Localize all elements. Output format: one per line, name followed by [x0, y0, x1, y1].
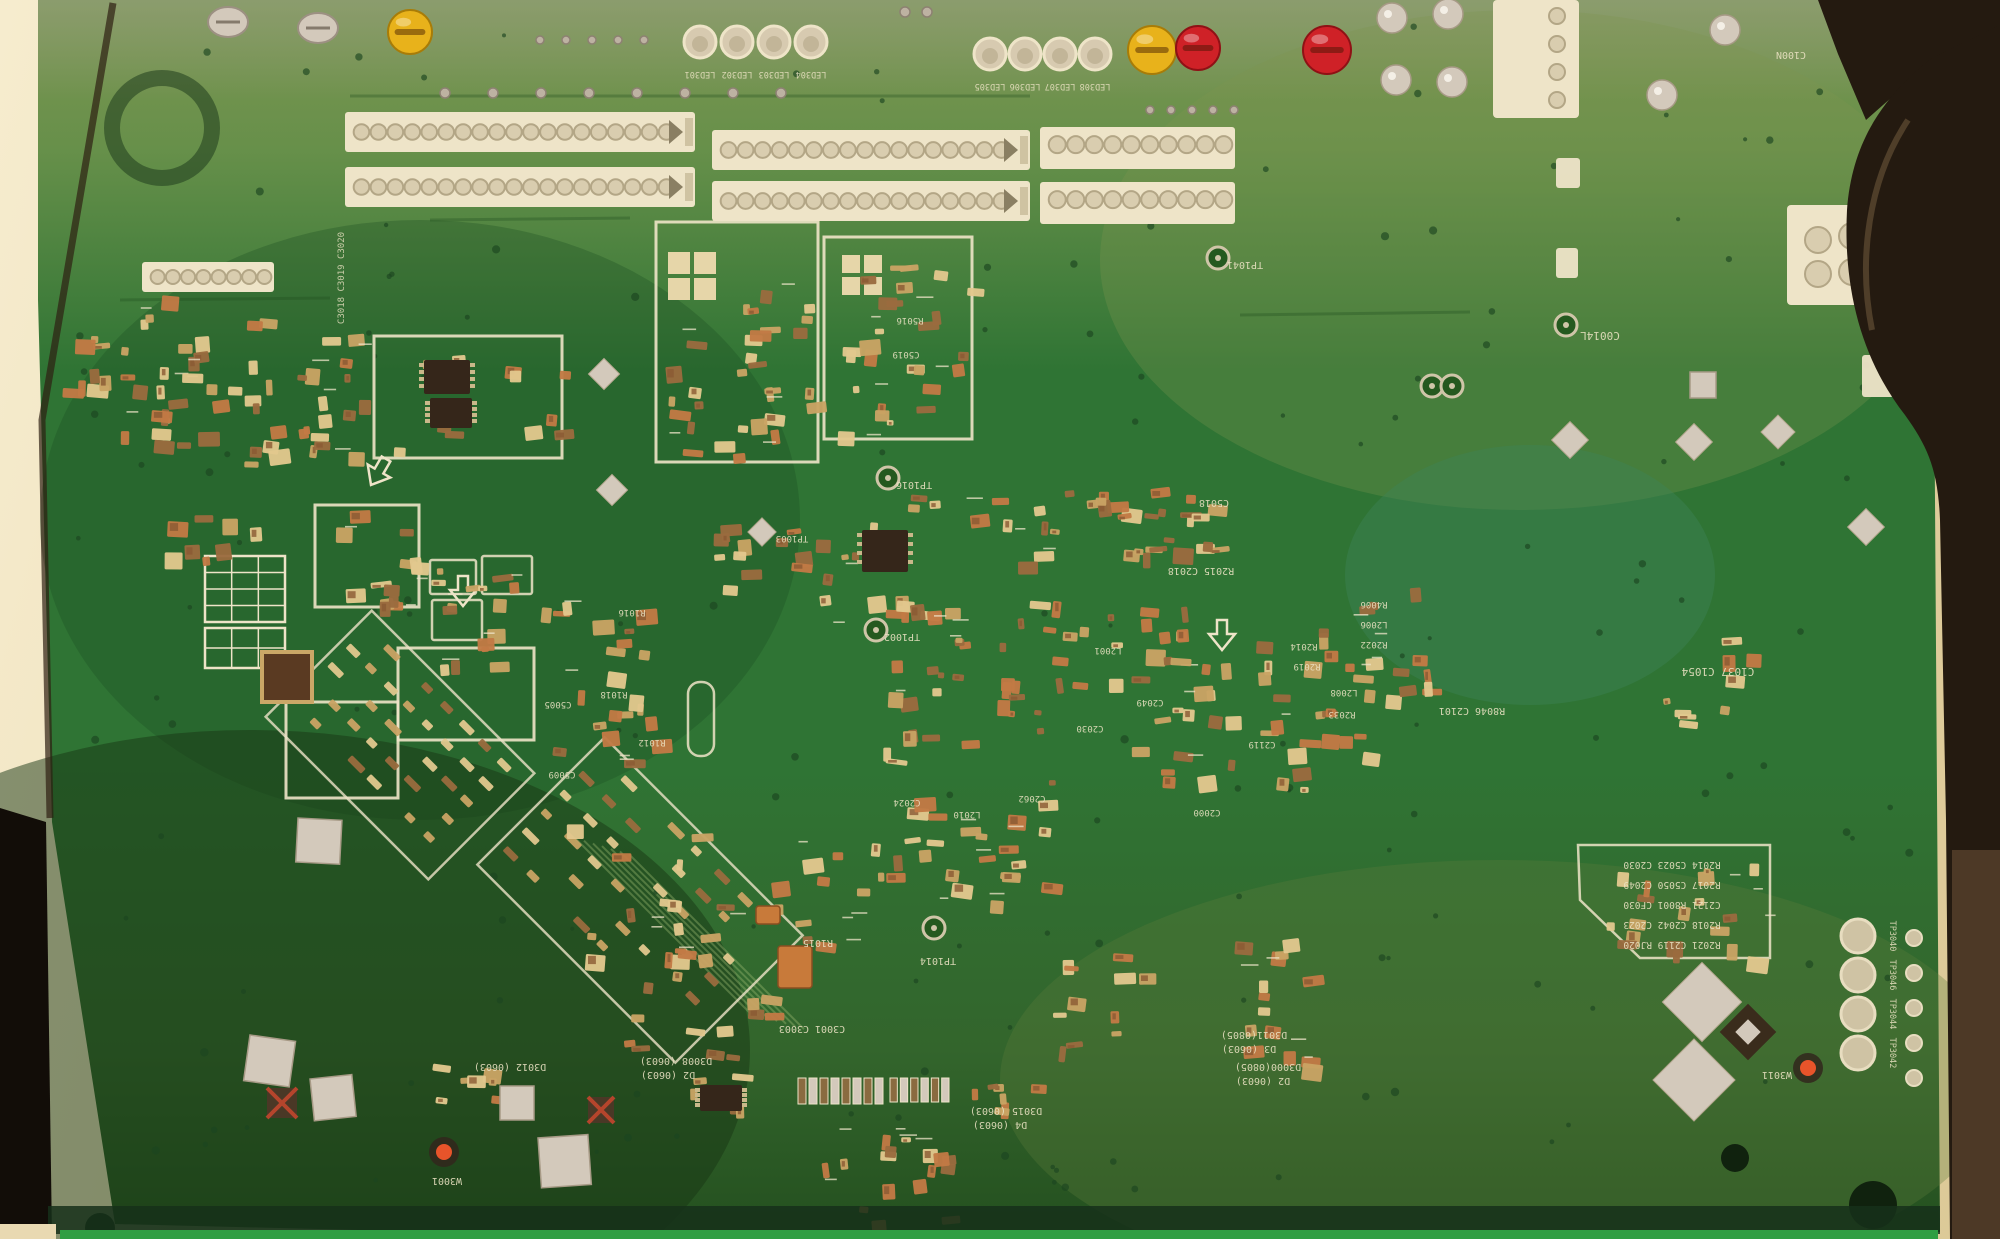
silkscreen-label: R2022 [1360, 639, 1387, 649]
via-dot [895, 1114, 901, 1120]
chip-pin [695, 1103, 700, 1107]
pad [1159, 631, 1171, 644]
solder-dot [1065, 634, 1071, 639]
micro-silk-text [851, 912, 867, 914]
pad [733, 551, 746, 561]
test-point [1441, 375, 1463, 397]
solder-dot [433, 582, 439, 585]
pad [816, 539, 831, 553]
pad [303, 426, 310, 435]
solder-dot [1089, 503, 1094, 507]
via-dot [1816, 88, 1823, 95]
dome-highlight [1440, 6, 1448, 14]
via-dot [634, 1091, 641, 1098]
solder-dot [316, 443, 323, 447]
pad [1065, 490, 1075, 498]
silkscreen-label: D3008 (0603) [640, 1055, 712, 1066]
pad [268, 448, 291, 466]
via-dot [1387, 848, 1392, 853]
solder-dot [123, 376, 129, 379]
strip-pin [960, 193, 976, 209]
pin-pad [1230, 106, 1238, 114]
pad [1258, 672, 1272, 686]
via-dot [200, 1048, 208, 1056]
pad [1096, 498, 1107, 506]
chip-pin [742, 1098, 747, 1102]
solder-dot [1052, 531, 1056, 534]
solder-dot [186, 547, 192, 554]
micro-silk-text [967, 497, 983, 499]
block-pin [1549, 36, 1565, 52]
chip-body [430, 398, 472, 428]
pad [244, 461, 258, 467]
solder-dot [912, 607, 918, 615]
via-dot [1905, 849, 1913, 857]
strip-pin [772, 193, 788, 209]
pad [938, 672, 945, 678]
pad [990, 900, 1004, 914]
micro-silk-text [335, 448, 351, 450]
led-red [429, 1137, 459, 1167]
solder-dot [692, 389, 697, 395]
pad [751, 418, 769, 435]
silkscreen-label: R2015 C2018 [1168, 565, 1234, 576]
micro-silk-text [484, 632, 495, 634]
via-dot [1483, 341, 1490, 348]
strip-pin [1215, 191, 1232, 208]
pad [592, 619, 615, 635]
cap-slot [395, 29, 426, 35]
via-dot [1132, 418, 1138, 424]
micro-silk-text [683, 329, 697, 331]
via-dot [355, 53, 362, 60]
pad [975, 833, 987, 841]
solder-dot [874, 845, 878, 852]
chip-body [700, 1085, 742, 1111]
solder-dot [1041, 829, 1046, 834]
label-box-row: R2021 C2119 RJ020 [1623, 939, 1721, 950]
pad [875, 329, 884, 335]
solder-dot [346, 376, 349, 380]
pin-pad [1146, 106, 1154, 114]
via-dot [408, 1080, 414, 1086]
pad [1034, 551, 1055, 562]
solder-dot [1013, 864, 1019, 868]
via-dot [921, 1067, 929, 1075]
via-dot [1679, 597, 1685, 603]
via-dot [1634, 578, 1640, 584]
pad [1354, 734, 1367, 740]
micro-silk-text [652, 916, 665, 918]
solder-dot [667, 369, 673, 377]
solder-dot [1068, 1045, 1075, 1048]
hatch-pad [921, 1078, 928, 1102]
pad [801, 316, 813, 325]
pad [1299, 739, 1321, 748]
pad [270, 425, 288, 440]
pin-pad [614, 36, 622, 44]
pad [153, 440, 175, 455]
pad [1079, 627, 1089, 638]
pin-pad [728, 88, 738, 98]
via-dot [1844, 475, 1850, 481]
pad [616, 639, 632, 649]
chip-pin [742, 1093, 747, 1097]
via-dot [1281, 413, 1285, 417]
silkscreen-label: L2010 [953, 809, 980, 819]
hatch-pad [931, 1078, 938, 1102]
strip-pin [755, 193, 771, 209]
pad [1141, 618, 1153, 632]
connector-strip [345, 112, 695, 152]
silkscreen-label: TP1014 [920, 955, 956, 966]
pin-pad [900, 7, 910, 17]
solder-dot [955, 885, 964, 892]
pad [198, 432, 220, 447]
solder-dot [749, 311, 754, 314]
solder-dome [1381, 65, 1411, 95]
orange-component [756, 906, 780, 924]
via-dot [124, 916, 129, 921]
solder-dot [1044, 884, 1053, 890]
cross-pad [267, 1088, 297, 1118]
chip-pin [695, 1093, 700, 1097]
chip-pin [470, 370, 475, 374]
solder-dot [1182, 514, 1191, 517]
pad [359, 400, 371, 415]
solder-dot [1304, 979, 1313, 984]
via-dot [91, 736, 99, 744]
led-footprint [1841, 919, 1875, 953]
via-dot [1726, 772, 1733, 779]
hatch-pad [890, 1078, 897, 1102]
pad [833, 852, 844, 860]
chip-pin [419, 377, 424, 381]
pad [608, 710, 622, 723]
solder-dot [348, 591, 356, 598]
solder-dot [1194, 516, 1201, 520]
solder-dot [1723, 640, 1731, 644]
test-point [923, 917, 945, 939]
solder-dot [955, 676, 960, 679]
solder-dot [170, 523, 178, 531]
via-dot [1534, 981, 1541, 988]
pad [524, 425, 543, 441]
pad [870, 522, 878, 531]
silkscreen-label: R8046 C2101 [1439, 705, 1505, 716]
micro-silk-text [1354, 614, 1369, 616]
solder-dot [352, 513, 360, 519]
via-dot [1008, 1025, 1013, 1030]
via-dot [595, 1150, 599, 1154]
solder-dot [1179, 632, 1184, 639]
led-pad-label: LED303 [759, 69, 790, 79]
pin-pad [640, 36, 648, 44]
solder-dot [1115, 955, 1123, 959]
strip-pin [540, 124, 556, 140]
via-dot [465, 315, 470, 320]
test-point-dot [885, 475, 891, 481]
solder-dot [555, 749, 561, 753]
led-small-pad [1906, 1070, 1922, 1086]
solder-dot [948, 871, 953, 877]
micro-silk-text [188, 359, 200, 361]
via-dot [241, 989, 246, 994]
pad [215, 543, 233, 562]
solder-dot [382, 604, 386, 612]
strip-pin [354, 124, 370, 140]
silkscreen-label: D3 (0603) [1222, 1043, 1276, 1054]
pad [1287, 748, 1307, 766]
dome-body [1377, 3, 1407, 33]
silkscreen-label-vertical: C3018 C3019 C3020 [337, 232, 347, 324]
micro-silk-text [651, 926, 662, 928]
solder-dot [1165, 778, 1170, 784]
solder-dot [668, 954, 671, 962]
pad [1170, 658, 1191, 667]
via-dot [1676, 217, 1680, 221]
led-footprint [1841, 997, 1875, 1031]
pad [922, 735, 940, 742]
via-dot [1593, 735, 1599, 741]
strip-pin [1086, 136, 1103, 153]
test-point [1555, 314, 1577, 336]
via-dot [624, 1134, 632, 1142]
cap-highlight [396, 18, 411, 27]
pad [817, 876, 830, 887]
pad [804, 304, 815, 314]
pad [121, 347, 129, 356]
solder-dot [675, 973, 679, 978]
quad-square [694, 278, 716, 300]
strip-pin [925, 142, 941, 158]
solder-dot [696, 404, 700, 408]
chip-pin [472, 413, 477, 417]
strip-pin [212, 270, 226, 284]
solder-dot [1004, 874, 1011, 879]
strip-pin [438, 179, 454, 195]
pad [451, 660, 460, 675]
pad [875, 410, 890, 422]
pad [318, 396, 329, 412]
quad-square [842, 277, 860, 295]
pad [631, 1014, 644, 1022]
pad [878, 873, 885, 882]
pad [1145, 649, 1166, 667]
micro-silk-text [936, 366, 949, 368]
pad [1000, 643, 1007, 652]
strip-pin [421, 179, 437, 195]
micro-silk-text [1282, 713, 1291, 715]
via-dot [874, 69, 879, 74]
pad [853, 386, 860, 394]
silkscreen-label: TP1002 [884, 631, 920, 642]
via-dot [1850, 836, 1855, 841]
pad [311, 433, 330, 442]
solder-dot [1185, 711, 1190, 717]
dome-highlight [1384, 10, 1392, 18]
connector-strip [1040, 182, 1235, 224]
solder-dot [931, 1167, 934, 1173]
strip-end [685, 173, 693, 201]
pad [509, 582, 520, 594]
solder-dot [158, 388, 161, 395]
micro-silk-text [1765, 915, 1775, 917]
led-footprint-label: TP3040 [1887, 921, 1897, 952]
pad [916, 406, 936, 414]
strip-pin [388, 124, 404, 140]
solder-dot [931, 503, 935, 507]
micro-silk-text [359, 343, 372, 345]
strip-pin [840, 142, 856, 158]
via-dot [1797, 628, 1804, 635]
pad [750, 330, 772, 342]
solder-dot [888, 760, 897, 763]
pad [1158, 508, 1167, 517]
red-cap [1303, 26, 1351, 74]
solder-dome [1647, 80, 1677, 110]
micro-silk-text [679, 947, 694, 949]
pad [955, 638, 962, 643]
pad [212, 399, 231, 414]
solder-dot [1001, 848, 1009, 852]
pad [1053, 1013, 1067, 1018]
strip-pin [789, 142, 805, 158]
via-dot [879, 449, 885, 455]
pad [1399, 685, 1417, 698]
strip-pin [891, 142, 907, 158]
pad [928, 813, 947, 820]
trace [120, 298, 330, 300]
solder-dot [491, 1080, 494, 1084]
strip-pin [371, 179, 387, 195]
pad [932, 688, 941, 696]
trace [430, 218, 630, 220]
via-dot [154, 695, 159, 700]
pad [1258, 992, 1270, 1001]
silkscreen-label: D3000(0805) [1235, 1061, 1301, 1072]
micro-silk-text [953, 619, 969, 621]
via-dot [1743, 137, 1747, 141]
quad-square [842, 255, 860, 273]
pad [628, 694, 644, 712]
strip-pin [823, 193, 839, 209]
via-dot [1362, 1093, 1370, 1101]
chip-pin [908, 551, 913, 555]
silkscreen-label: C5019 [892, 349, 919, 359]
via-dot [1391, 1088, 1399, 1096]
micro-silk-text [900, 1134, 918, 1136]
silkscreen-label: C1037 C1054 [1681, 665, 1754, 678]
strip-pin [1123, 191, 1140, 208]
solder-dome [1377, 3, 1407, 33]
chip-pin [425, 413, 430, 417]
strip-pin [721, 193, 737, 209]
solder-dot [1280, 779, 1285, 786]
pin-pad [922, 7, 932, 17]
pad [165, 552, 183, 569]
strip-pin [1160, 136, 1177, 153]
solder-dot [1174, 710, 1179, 713]
led-small-pad [1906, 1035, 1922, 1051]
micro-silk-text [799, 841, 808, 843]
pad [999, 1093, 1007, 1105]
solder-dot [724, 536, 727, 541]
via-dot [1596, 629, 1603, 636]
strip-pin [960, 142, 976, 158]
quad-square [694, 252, 716, 274]
strip-pin [1178, 136, 1195, 153]
via-dot [1566, 1123, 1571, 1128]
micro-silk-text [896, 690, 906, 692]
solder-dot [101, 378, 106, 386]
chip-pin [425, 407, 430, 411]
metal-pad-square [500, 1086, 534, 1120]
silkscreen-label: C5018 [1199, 497, 1229, 508]
dome-body [1437, 67, 1467, 97]
via-dot [1661, 459, 1666, 464]
pad [1273, 694, 1291, 702]
solder-dot [1011, 713, 1014, 716]
pad [914, 365, 925, 375]
strip-pin [506, 179, 522, 195]
silkscreen-label: C2049 [1136, 697, 1163, 707]
micro-silk-text [564, 600, 581, 602]
solder-dot [1425, 672, 1428, 680]
pad [62, 388, 84, 399]
via-dot [984, 264, 991, 271]
solder-dot [1415, 657, 1421, 663]
pad [1225, 716, 1242, 731]
pad [297, 375, 307, 381]
pad [222, 519, 238, 536]
cross-pad [588, 1097, 614, 1123]
pad [559, 371, 571, 380]
pad [1132, 747, 1150, 757]
pad [1270, 720, 1284, 736]
strip-pin [823, 142, 839, 158]
via-dot [1070, 260, 1077, 267]
solder-dot [154, 412, 162, 418]
strip-pin [591, 124, 607, 140]
table-sliver [0, 1224, 56, 1239]
pad [266, 380, 273, 396]
solder-dot [1152, 491, 1160, 496]
strip-pin [1067, 136, 1084, 153]
pad [178, 344, 192, 354]
silkscreen-label: L2006 [1360, 619, 1387, 629]
yellow-cap [388, 10, 432, 54]
via-dot [1415, 376, 1421, 382]
via-dot [91, 411, 98, 418]
micro-silk-text [512, 574, 523, 576]
pad [1140, 607, 1160, 618]
pad [1301, 1063, 1324, 1082]
test-point-dot [1563, 322, 1569, 328]
pad [698, 953, 714, 968]
silkscreen-label: D3012 (0603) [474, 1061, 546, 1072]
via-dot [1550, 1139, 1555, 1144]
solder-dot [1266, 663, 1269, 670]
strip-pin [1086, 191, 1103, 208]
via-dot [1428, 636, 1432, 640]
chip-pin [857, 551, 862, 555]
silkscreen-label: R2014 [1290, 641, 1317, 651]
led-pad-center [766, 36, 782, 52]
strip-pin [1160, 191, 1177, 208]
strip-pin [1049, 191, 1066, 208]
led-footprint-label: TP3046 [1887, 960, 1897, 991]
